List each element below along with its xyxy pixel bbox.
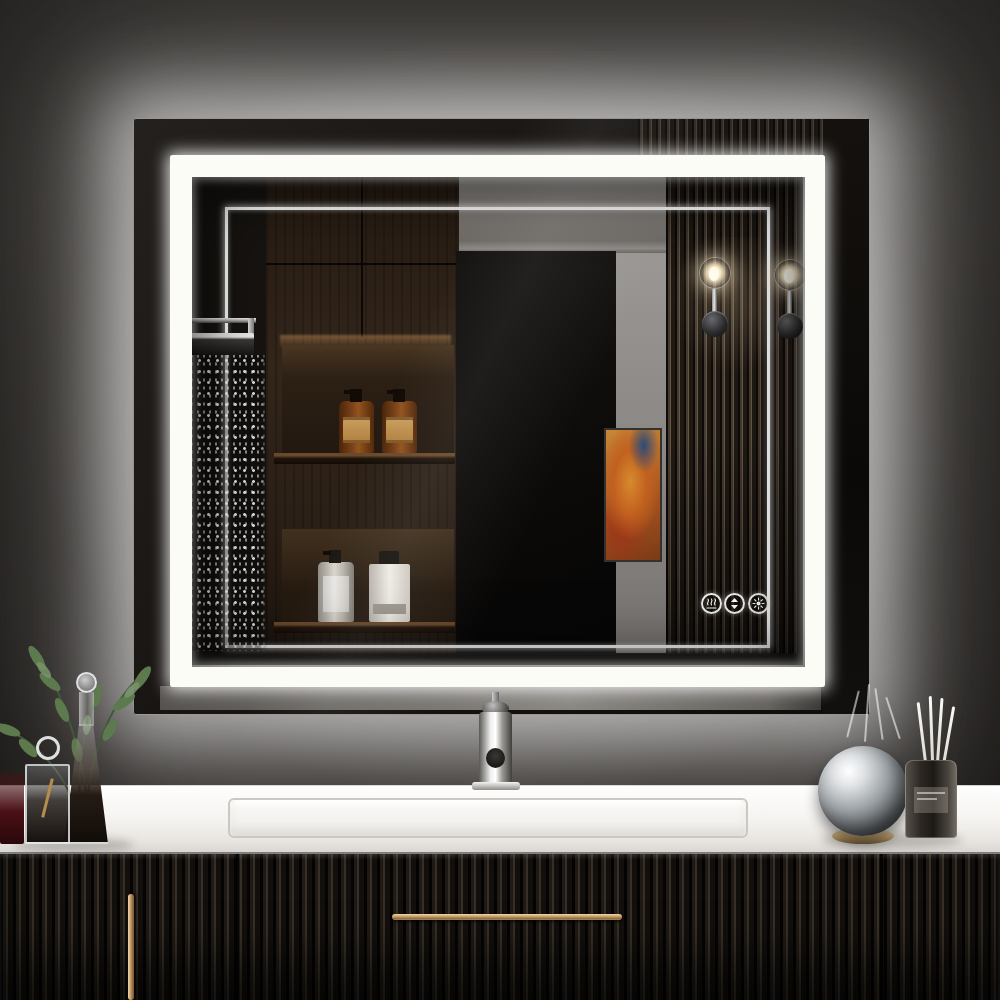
wall-sconce xyxy=(773,259,805,351)
label-text-line xyxy=(917,792,945,794)
bottle-label xyxy=(343,417,370,443)
shelf-niche-upper xyxy=(282,345,454,453)
decanter-ball-stopper xyxy=(76,672,97,693)
amber-pump-bottle xyxy=(339,401,374,453)
chrome-faucet[interactable] xyxy=(462,692,528,792)
sconce-stem xyxy=(787,291,792,315)
white-square-bottle xyxy=(369,564,410,622)
label-text-line xyxy=(917,798,937,800)
door-brass-handle[interactable] xyxy=(128,894,134,1000)
cube-vase-ring xyxy=(36,736,60,760)
bottle-pump xyxy=(393,389,405,402)
drawer-brass-handle[interactable] xyxy=(392,914,622,920)
dimmer-arrows-icon xyxy=(729,597,740,610)
reflected-abstract-artwork xyxy=(604,428,662,562)
mirrored-sphere xyxy=(818,746,908,836)
color-temp-button[interactable] xyxy=(748,593,769,614)
reflected-water-spray xyxy=(192,355,268,651)
bottle-pump xyxy=(350,389,362,402)
shelf-niche-lower xyxy=(282,529,454,622)
door-seam xyxy=(236,854,239,1000)
color-temp-icon xyxy=(752,597,765,610)
reflected-black-panel xyxy=(456,251,616,653)
mirror-edge-right xyxy=(823,119,869,714)
decanter-neck xyxy=(79,692,94,726)
sconce-bulb-glow xyxy=(784,269,794,283)
dimmer-button[interactable] xyxy=(724,593,745,614)
door-seam xyxy=(880,854,883,1000)
wood-shelf xyxy=(274,622,455,633)
led-mirror xyxy=(133,118,870,715)
black-fluted-vanity xyxy=(0,854,1000,1000)
sconce-bulb-glow xyxy=(709,267,719,281)
glass-decanter xyxy=(64,672,108,844)
bottle-label xyxy=(386,417,413,443)
mirror-edge-reflection-flutes xyxy=(638,119,823,175)
sconce-backplate xyxy=(702,311,728,337)
sconce-backplate xyxy=(777,313,803,339)
diffuser-label xyxy=(914,787,948,813)
wall-sconce xyxy=(698,257,732,349)
white-pump-bottle xyxy=(318,562,354,622)
reflected-wood-cabinets xyxy=(266,177,459,653)
bathroom-product-photo xyxy=(0,0,1000,1000)
integrated-sink-basin xyxy=(228,798,748,838)
amber-pump-bottle xyxy=(382,401,417,453)
wood-shelf xyxy=(274,453,455,464)
red-glass xyxy=(0,772,24,844)
sconce-stem xyxy=(712,289,717,313)
defog-button[interactable] xyxy=(701,593,722,614)
cabinet-seam xyxy=(361,177,363,337)
reed-diffuser-bottle xyxy=(905,760,957,838)
faucet-base-plate xyxy=(472,782,520,790)
reflected-shower-arm xyxy=(192,318,256,323)
defog-icon xyxy=(705,597,718,610)
mirror-reflection-scene xyxy=(192,177,805,667)
reflected-shower-head xyxy=(192,333,254,355)
reflected-fluted-slat-wall xyxy=(666,177,805,653)
decanter-body xyxy=(64,724,108,844)
bottle-pump xyxy=(329,550,341,563)
reflected-ceiling xyxy=(450,177,674,253)
flute-shading xyxy=(666,177,805,653)
faucet-spout-opening xyxy=(486,748,505,768)
